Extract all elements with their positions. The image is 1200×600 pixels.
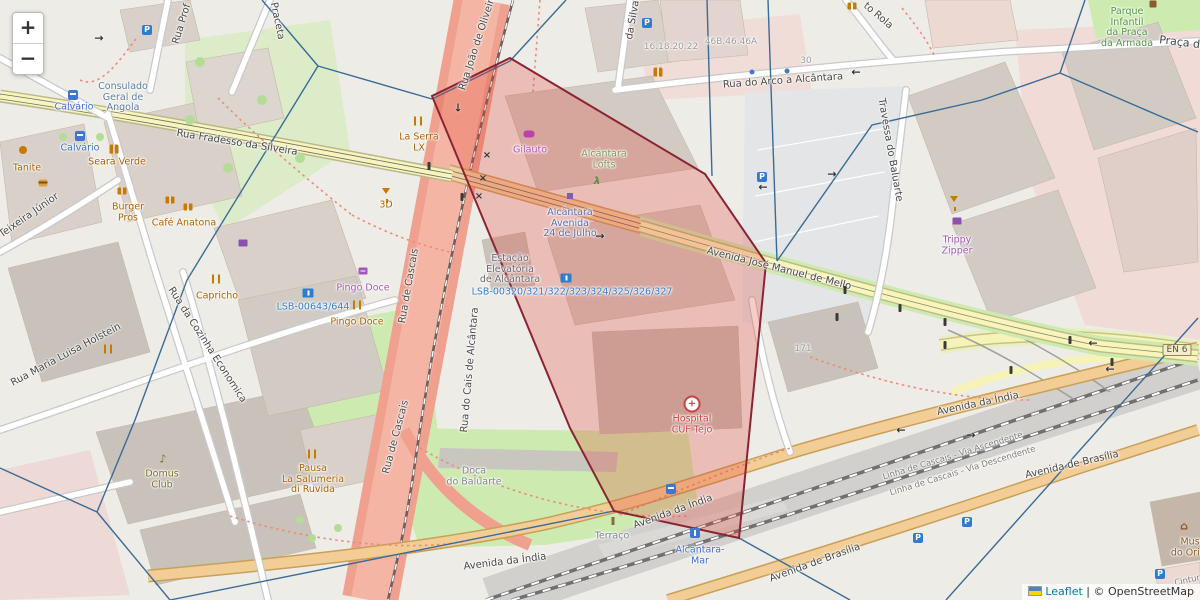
- zoom-out-button[interactable]: −: [13, 44, 43, 74]
- leaflet-map[interactable]: Rua Fradesso da SilveiraAvenida José Man…: [0, 0, 1200, 600]
- leaflet-flag-icon: [1028, 586, 1042, 596]
- osm-link[interactable]: © OpenStreetMap: [1093, 585, 1194, 598]
- basemap-svg: [0, 0, 1200, 600]
- zoom-in-button[interactable]: +: [13, 13, 43, 44]
- leaflet-link[interactable]: Leaflet: [1045, 585, 1082, 598]
- attribution-separator: |: [1083, 585, 1094, 598]
- zoom-control: + −: [12, 12, 44, 75]
- attribution-bar: Leaflet | © OpenStreetMap: [1022, 584, 1200, 600]
